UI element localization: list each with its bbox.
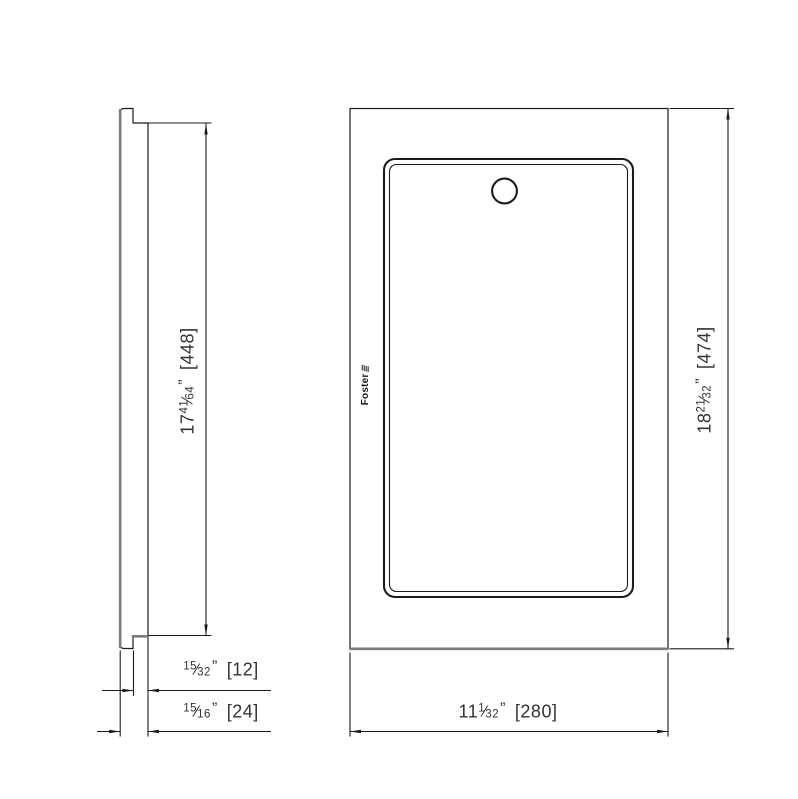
foster-logo: Foster≣ [361,365,371,406]
side-view [120,109,148,649]
dim-numerator: 21 [695,399,707,413]
drawing-linework [0,0,798,799]
dim-denominator: 16 [197,708,211,720]
dimension-front-width [350,653,668,737]
foster-logo-mark-icon: ≣ [361,364,370,374]
dim-denominator: 32 [485,708,499,720]
dim-inch-mark: ” [693,378,710,384]
arrowhead-right [657,730,668,733]
dimension-label-side-height: 1741⁄64”[448] [177,327,197,434]
front-view-recess-outer-rect [384,159,633,597]
dim-denominator: 64 [184,386,196,400]
dimension-label-front-height: 1821⁄32”[474] [694,326,714,433]
arrowhead-left [148,730,159,733]
front-view-outer-rect [350,109,668,650]
front-view-recess-inner-rect [390,165,628,592]
dim-inch-mark: ” [500,700,506,717]
dimension-label-total-thickness: 15⁄16”[24] [183,701,259,721]
dim-whole: 17 [177,414,197,435]
dim-inch-mark: ” [176,379,193,385]
dim-whole: 18 [694,413,714,434]
dim-numerator: 41 [178,400,190,414]
dim-denominator: 32 [197,666,211,678]
arrowhead-up [726,109,729,120]
arrowhead-left [148,689,159,692]
arrowhead-right [109,730,120,733]
finger-hole [492,179,517,204]
dimension-label-front-width: 111⁄32”[280] [459,701,558,721]
dim-inch-mark: ” [212,658,218,675]
dim-mm-value: [280] [515,701,558,721]
dim-mm-value: [474] [694,326,714,369]
dim-mm-value: [448] [177,327,197,370]
dimension-lip-thickness [102,638,271,737]
front-view [350,109,668,650]
side-view-outline [120,109,148,649]
arrowhead-up [204,124,207,135]
dim-denominator: 32 [701,385,713,399]
technical-drawing-canvas: 1741⁄64”[448] 1821⁄32”[474] 111⁄32”[280]… [0,0,798,799]
dim-whole: 11 [459,701,479,721]
dim-mm-value: [12] [227,659,259,679]
arrowhead-right [123,689,134,692]
dim-mm-value: [24] [227,701,259,721]
dimension-label-lip-thickness: 15⁄32”[12] [183,659,259,679]
foster-logo-text: Foster [360,373,371,405]
arrowhead-down [204,625,207,636]
arrowhead-left [350,730,361,733]
dim-inch-mark: ” [212,700,218,717]
arrowhead-down [726,638,729,649]
